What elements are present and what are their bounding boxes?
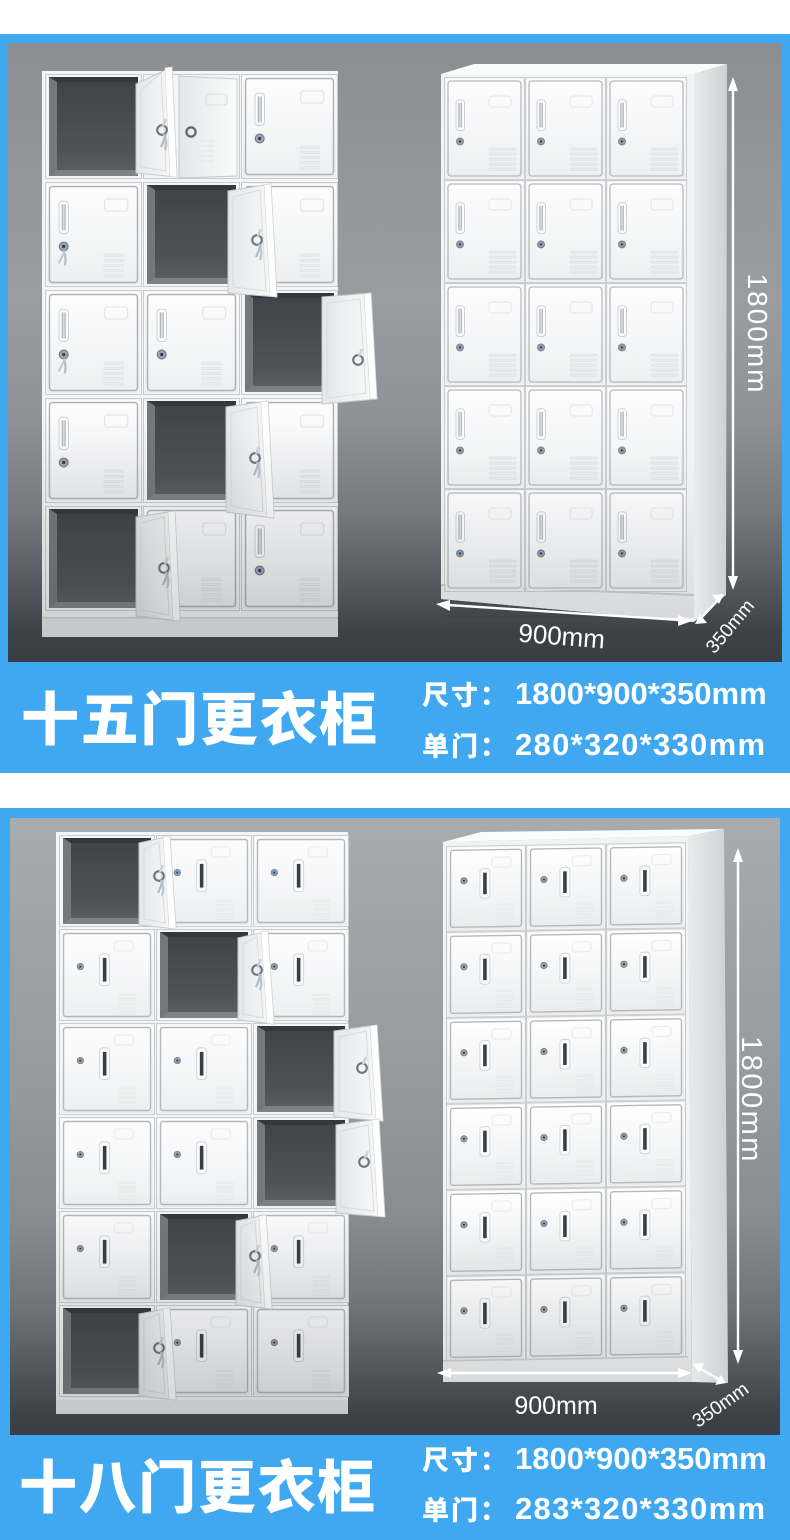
svg-text:1800mm: 1800mm bbox=[735, 1036, 767, 1164]
svg-text:350mm: 350mm bbox=[689, 1379, 753, 1433]
svg-text:1800mm: 1800mm bbox=[742, 274, 773, 395]
svg-text:900mm: 900mm bbox=[517, 618, 606, 655]
svg-text:900mm: 900mm bbox=[514, 1392, 597, 1420]
